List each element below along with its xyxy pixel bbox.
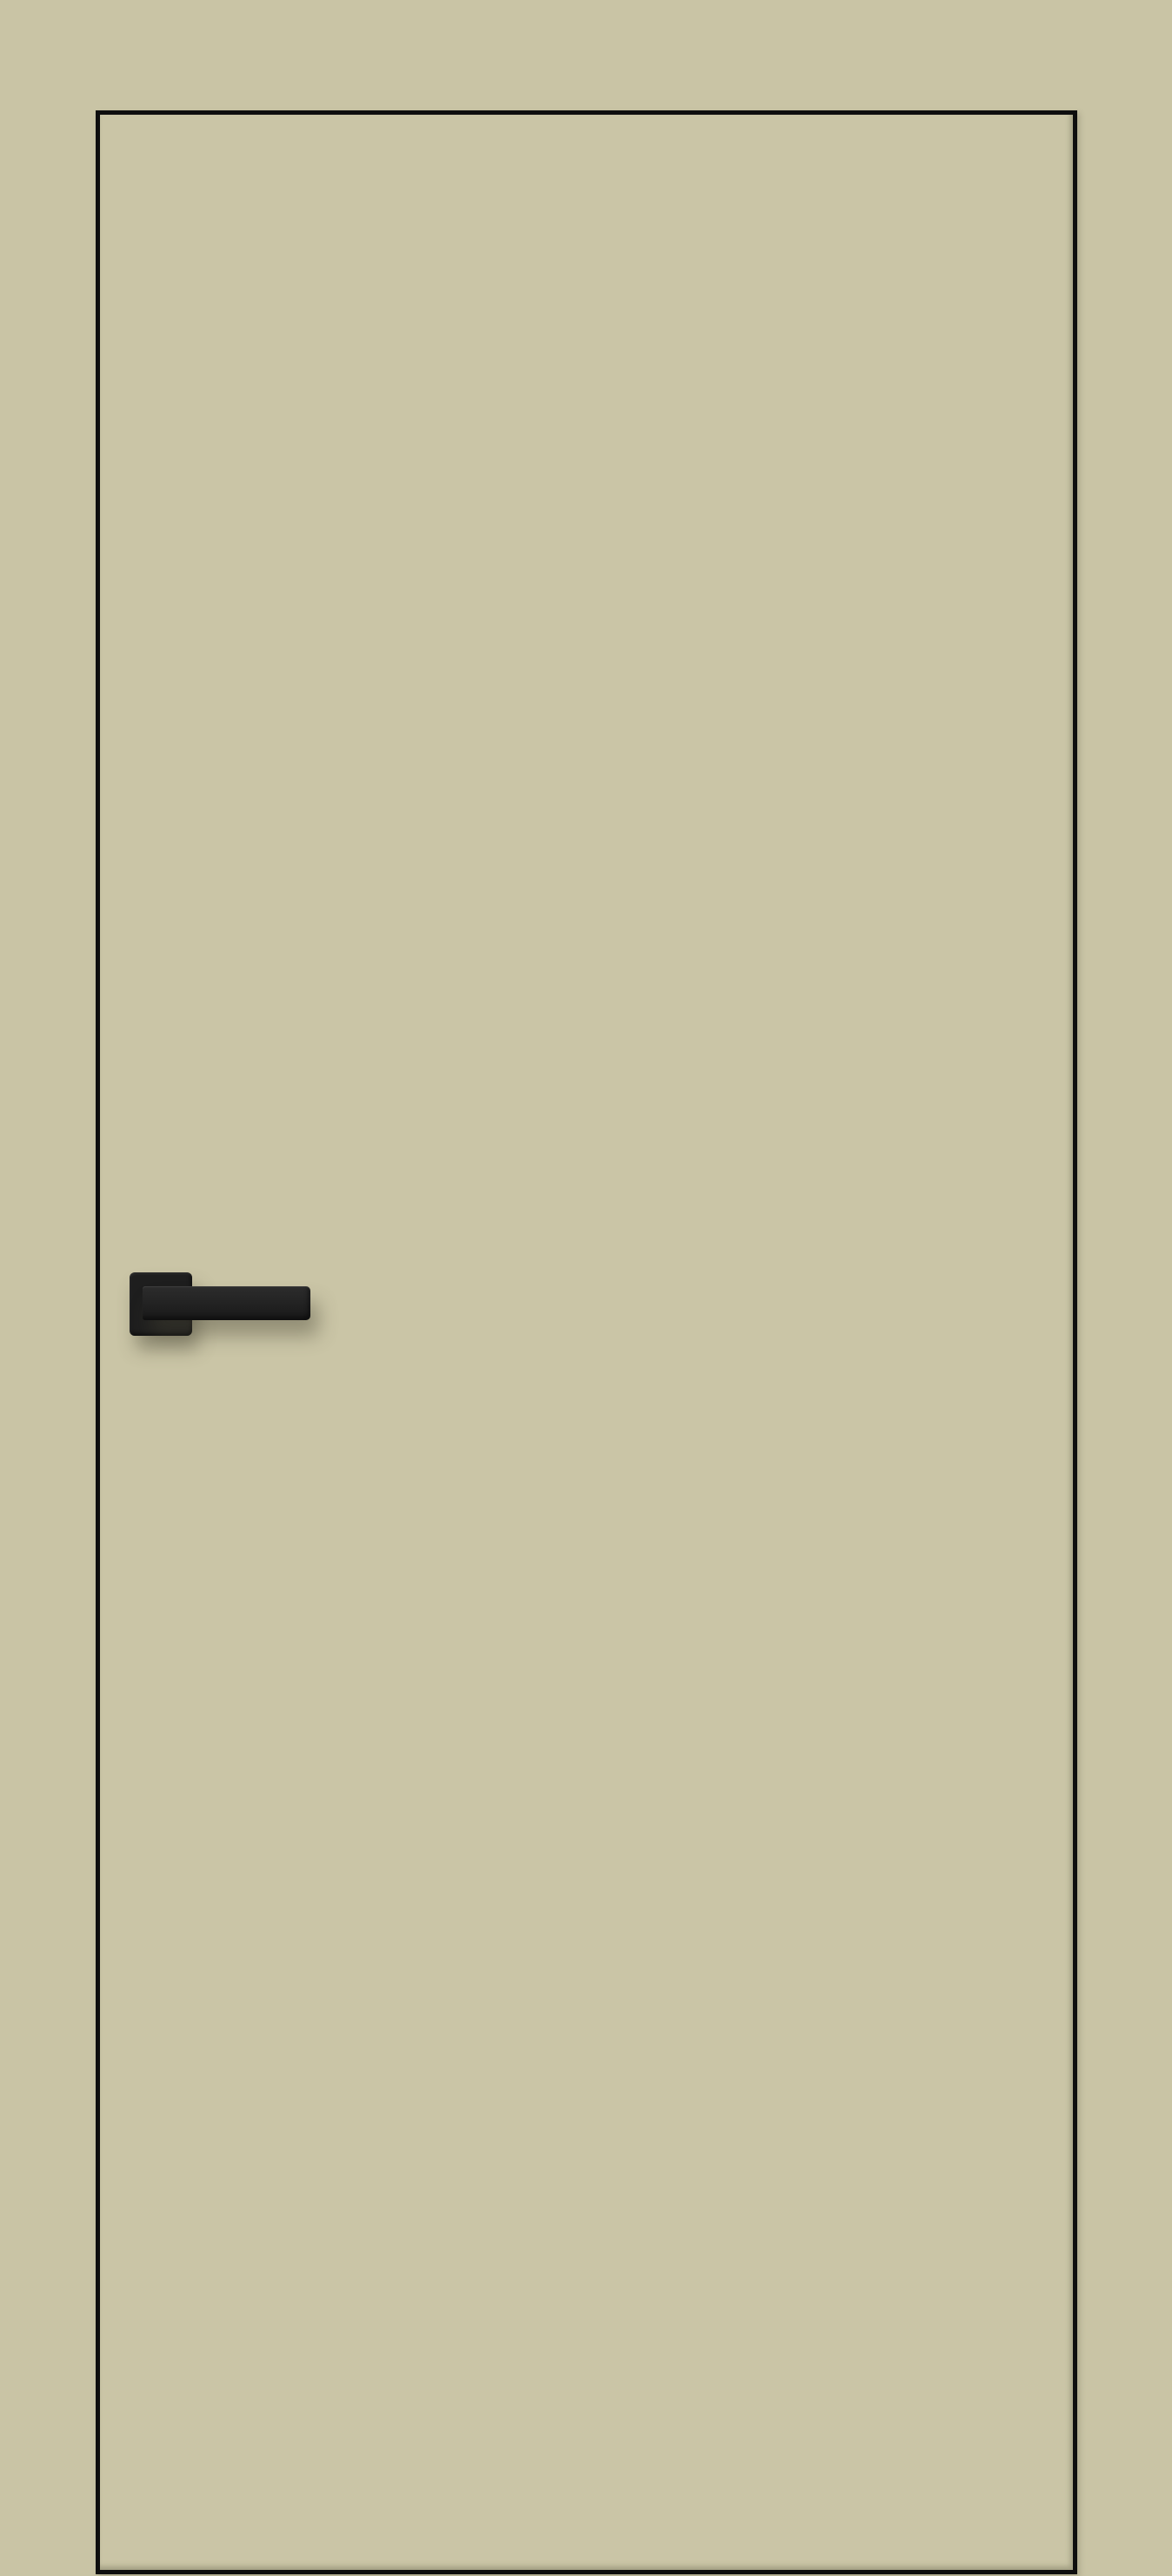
door-leaf [96, 110, 1077, 2574]
product-image-canvas: { "scene": { "type": "product-render", "… [0, 0, 1172, 2576]
